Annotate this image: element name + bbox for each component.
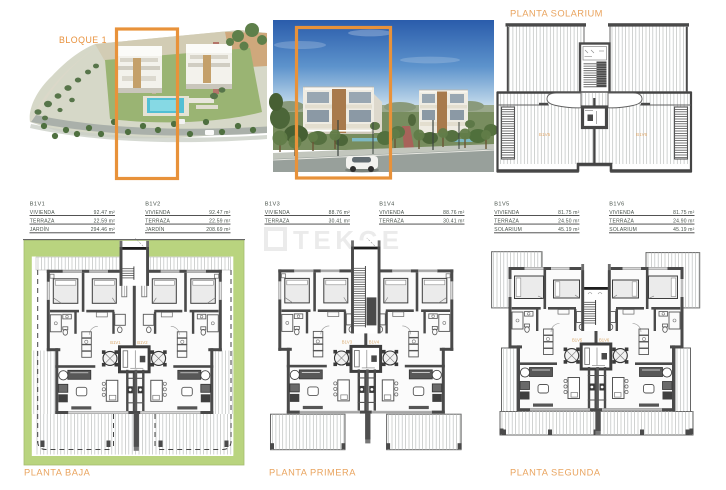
svg-text:B1V2: B1V2 [137, 340, 148, 345]
svg-text:24.50 m²: 24.50 m² [558, 219, 579, 225]
svg-text:TERRAZA: TERRAZA [494, 219, 519, 225]
svg-text:92.47 m²: 92.47 m² [209, 210, 230, 216]
svg-text:TERRAZA: TERRAZA [30, 219, 55, 225]
svg-text:VIVIENDA: VIVIENDA [30, 210, 55, 216]
svg-text:81.75 m²: 81.75 m² [558, 210, 579, 216]
svg-text:TERRAZA: TERRAZA [265, 219, 290, 225]
svg-text:30.41 m²: 30.41 m² [329, 219, 350, 225]
svg-text:VIVIENDA: VIVIENDA [145, 210, 170, 216]
svg-text:88.76 m²: 88.76 m² [443, 210, 464, 216]
svg-text:B1V6: B1V6 [636, 132, 648, 137]
svg-text:B1V4: B1V4 [379, 202, 394, 208]
svg-text:TERRAZA: TERRAZA [379, 219, 404, 225]
svg-text:PLANTA PRIMERA: PLANTA PRIMERA [269, 468, 356, 478]
svg-text:JARDÍN: JARDÍN [145, 226, 164, 233]
svg-text:B1V6: B1V6 [609, 202, 624, 208]
svg-text:PLANTA SEGUNDA: PLANTA SEGUNDA [510, 468, 601, 478]
svg-text:208.69 m²: 208.69 m² [206, 227, 230, 233]
svg-text:SOLARIUM: SOLARIUM [494, 227, 522, 233]
svg-text:B1V3: B1V3 [342, 340, 353, 345]
svg-text:BLOQUE 1: BLOQUE 1 [59, 35, 107, 45]
svg-text:81.75 m²: 81.75 m² [673, 210, 694, 216]
svg-text:B1V5: B1V5 [539, 132, 551, 137]
svg-text:24.90 m²: 24.90 m² [673, 219, 694, 225]
svg-text:B1V6: B1V6 [599, 337, 610, 342]
svg-text:PLANTA BAJA: PLANTA BAJA [24, 468, 91, 478]
svg-text:45.19 m²: 45.19 m² [673, 227, 694, 233]
svg-text:B1V4: B1V4 [369, 340, 380, 345]
svg-text:22.59 m²: 22.59 m² [209, 219, 230, 225]
svg-text:B1V3: B1V3 [265, 202, 280, 208]
svg-text:TERRAZA: TERRAZA [609, 219, 634, 225]
svg-text:TERRAZA: TERRAZA [145, 219, 170, 225]
svg-text:JARDÍN: JARDÍN [30, 226, 49, 233]
svg-text:294.46 m²: 294.46 m² [91, 227, 115, 233]
svg-text:45.19 m²: 45.19 m² [558, 227, 579, 233]
svg-text:B1V5: B1V5 [572, 337, 583, 342]
svg-text:92.47 m²: 92.47 m² [94, 210, 115, 216]
svg-text:B1V5: B1V5 [494, 202, 509, 208]
svg-text:PLANTA SOLARIUM: PLANTA SOLARIUM [510, 8, 603, 19]
svg-text:30.41 m²: 30.41 m² [443, 219, 464, 225]
svg-text:B1V2: B1V2 [145, 202, 160, 208]
svg-text:VIVIENDA: VIVIENDA [609, 210, 634, 216]
svg-text:VIVIENDA: VIVIENDA [494, 210, 519, 216]
svg-text:VIVIENDA: VIVIENDA [379, 210, 404, 216]
svg-text:B1V1: B1V1 [30, 202, 45, 208]
svg-text:B1V1: B1V1 [110, 340, 121, 345]
svg-text:VIVIENDA: VIVIENDA [265, 210, 290, 216]
svg-text:88.76 m²: 88.76 m² [329, 210, 350, 216]
svg-text:22.59 m²: 22.59 m² [94, 219, 115, 225]
svg-text:TEKCE: TEKCE [293, 225, 404, 255]
svg-text:SOLARIUM: SOLARIUM [609, 227, 637, 233]
